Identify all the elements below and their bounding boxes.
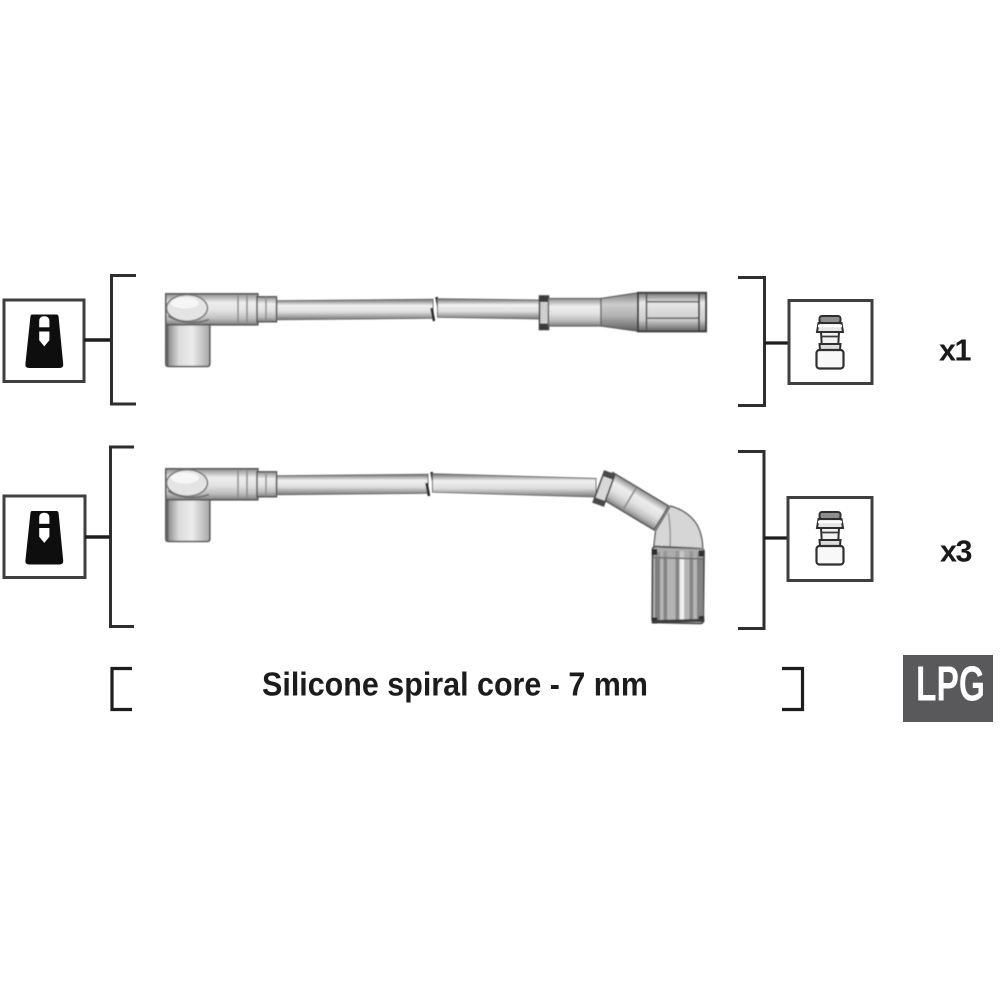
- svg-text:x3: x3: [940, 535, 971, 569]
- svg-text:Silicone spiral core - 7 mm: Silicone spiral core - 7 mm: [262, 665, 648, 702]
- svg-text:LPG: LPG: [916, 656, 985, 711]
- svg-text:x1: x1: [939, 334, 971, 368]
